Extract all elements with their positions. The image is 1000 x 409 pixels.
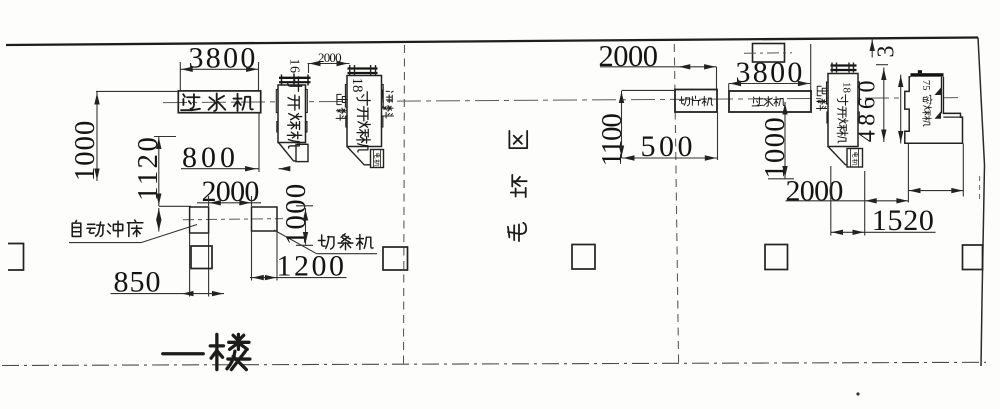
svg-text:75: 75 bbox=[920, 80, 931, 91]
svg-text:4860: 4860 bbox=[854, 76, 880, 142]
svg-text:1100: 1100 bbox=[596, 114, 628, 167]
svg-text:3800: 3800 bbox=[736, 56, 805, 89]
svg-text:16: 16 bbox=[287, 59, 302, 74]
svg-text:18: 18 bbox=[349, 78, 365, 93]
svg-text:3: 3 bbox=[874, 46, 900, 58]
svg-text:2000: 2000 bbox=[786, 175, 843, 208]
svg-text:2000: 2000 bbox=[599, 39, 658, 73]
svg-text:18: 18 bbox=[841, 82, 853, 94]
